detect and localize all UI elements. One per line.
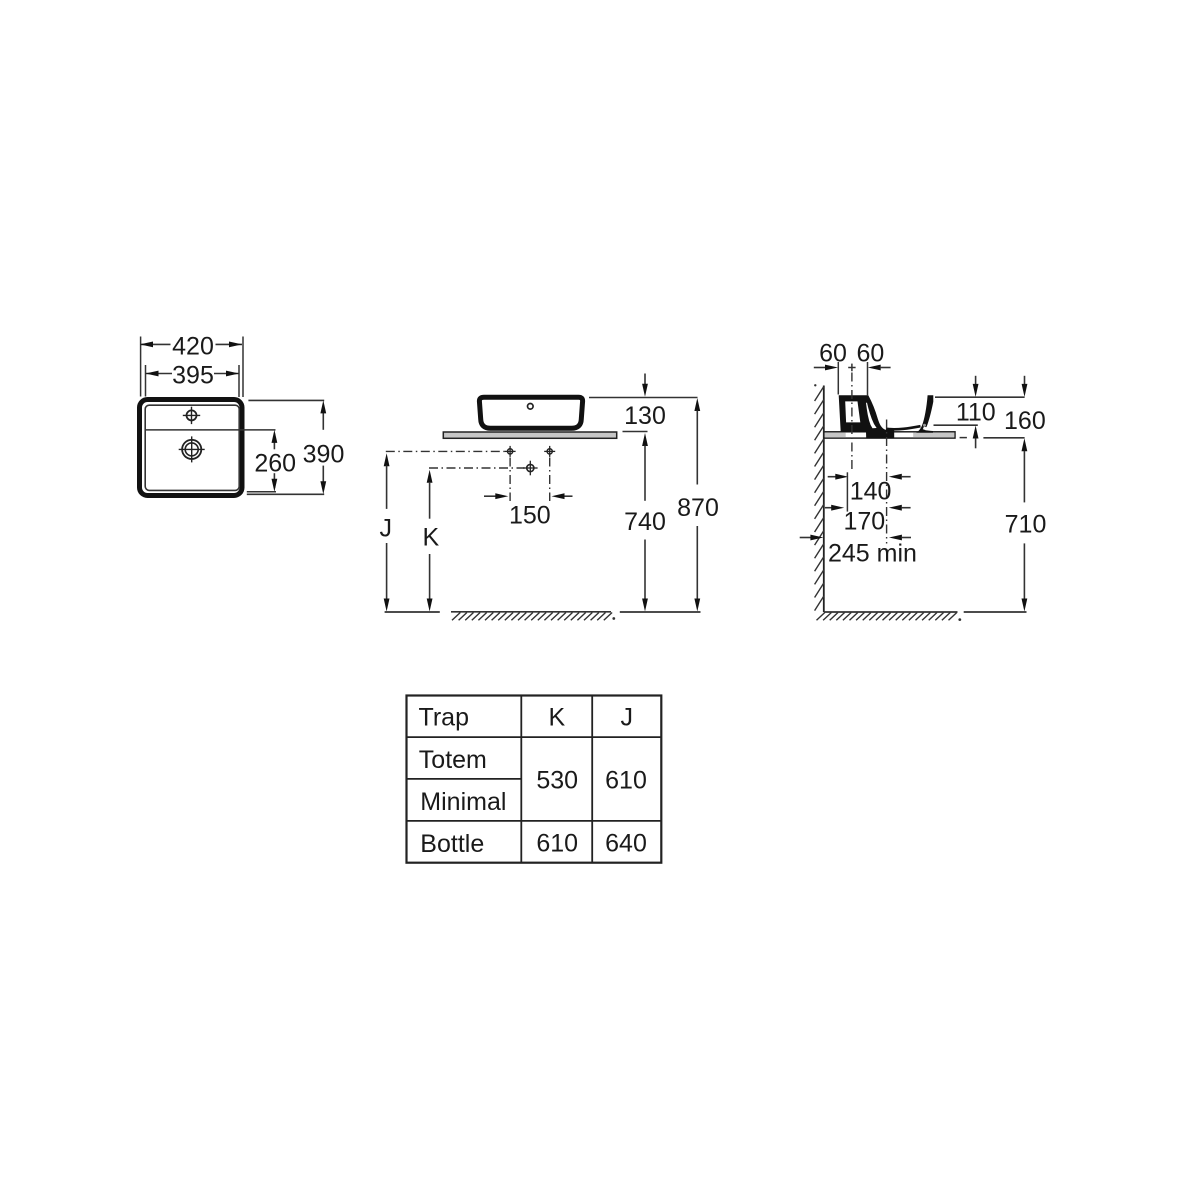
svg-text:150: 150 <box>509 502 551 530</box>
svg-text:395: 395 <box>172 362 214 390</box>
svg-text:170: 170 <box>843 508 885 536</box>
svg-text:Trap: Trap <box>419 703 469 731</box>
svg-text:K: K <box>423 524 440 552</box>
svg-text:110: 110 <box>956 399 996 427</box>
svg-text:640: 640 <box>605 830 647 858</box>
svg-text:260: 260 <box>254 450 296 478</box>
svg-text:140: 140 <box>850 477 892 505</box>
svg-text:710: 710 <box>1005 510 1047 538</box>
svg-text:610: 610 <box>536 830 578 858</box>
svg-text:870: 870 <box>677 494 719 522</box>
svg-text:530: 530 <box>536 767 578 795</box>
svg-text:610: 610 <box>605 767 647 795</box>
svg-text:420: 420 <box>172 332 214 360</box>
svg-text:390: 390 <box>303 441 345 469</box>
svg-text:245 min: 245 min <box>828 540 917 568</box>
svg-text:160: 160 <box>1004 407 1046 435</box>
svg-text:Totem: Totem <box>419 746 487 774</box>
svg-text:Minimal: Minimal <box>420 788 506 816</box>
svg-text:130: 130 <box>624 402 666 430</box>
svg-text:60: 60 <box>819 339 847 367</box>
svg-text:60: 60 <box>856 339 884 367</box>
svg-text:740: 740 <box>624 508 666 536</box>
svg-text:Bottle: Bottle <box>420 830 484 858</box>
svg-text:J: J <box>620 703 633 731</box>
svg-text:K: K <box>549 703 566 731</box>
svg-text:J: J <box>380 514 393 542</box>
